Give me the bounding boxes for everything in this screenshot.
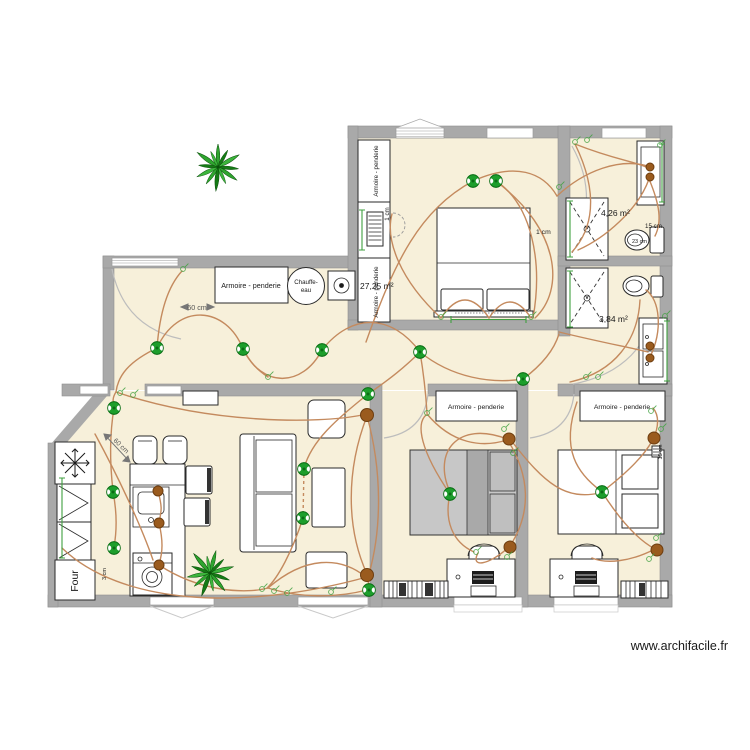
bar-stool-2[interactable] (163, 436, 187, 464)
wardrobe-bedroom1-label: Armoire - penderie (448, 404, 505, 411)
window-hall-bottom-b[interactable] (147, 386, 181, 394)
watermark: www.archifacile.fr (630, 639, 728, 653)
toilet-2[interactable] (623, 276, 663, 297)
outlet-icon[interactable] (646, 342, 654, 350)
wall-bedroom2-left[interactable] (516, 384, 528, 607)
dim-1cm-h: 1 cm (536, 229, 551, 236)
window-bedroom2[interactable] (554, 597, 618, 612)
oven-label: Four (69, 570, 81, 592)
window-bath-top[interactable] (602, 128, 646, 138)
wardrobe-bedroom2-label: Armoire - penderie (594, 404, 651, 411)
water-heater-label-1: Chauffe- (294, 279, 318, 286)
chair-1[interactable] (186, 466, 212, 494)
master-bed[interactable] (434, 208, 533, 317)
dim-3cm: 3 cm (102, 568, 108, 580)
bookshelf-bedroom1[interactable] (384, 581, 448, 598)
window-living-2[interactable] (298, 597, 368, 618)
bookshelf-bedroom2[interactable] (621, 581, 668, 598)
outlet-icon[interactable] (648, 432, 660, 444)
outlet-icon[interactable] (361, 569, 374, 582)
dim-1cm-v: 1 cm (384, 207, 391, 220)
window-hall-bottom-a[interactable] (80, 386, 108, 394)
window-bedroom1[interactable] (454, 597, 522, 612)
spotlight-box[interactable] (328, 271, 355, 300)
outlet-icon[interactable] (154, 518, 164, 528)
desk-bedroom2[interactable] (550, 559, 618, 597)
area-label-bathroom1[interactable]: 4,26 m² (601, 208, 630, 218)
window-living-1[interactable] (150, 597, 214, 618)
outlet-icon[interactable] (504, 541, 516, 553)
water-heater-label-2: eau (301, 287, 312, 294)
window-entry[interactable] (112, 258, 178, 266)
outlet-icon[interactable] (646, 354, 654, 362)
side-table[interactable] (306, 552, 347, 588)
outlet-icon[interactable] (153, 486, 163, 496)
outlet-icon[interactable] (503, 433, 515, 445)
sofa[interactable] (240, 434, 296, 552)
outlet-icon[interactable] (646, 163, 654, 171)
chair-2[interactable] (184, 498, 210, 526)
coffee-table[interactable] (312, 468, 345, 527)
radiator[interactable] (367, 212, 383, 246)
plant-icon[interactable] (196, 144, 240, 191)
bed-bedroom2[interactable] (558, 450, 664, 534)
wardrobe-label: Armoire - penderie (373, 145, 380, 197)
wall-hall-left[interactable] (103, 256, 114, 390)
snowflake-icon (61, 449, 89, 477)
outlet-icon[interactable] (651, 544, 663, 556)
bed-bedroom1[interactable] (410, 450, 517, 535)
outlet-icon[interactable] (361, 409, 374, 422)
area-label-bathroom2[interactable]: 3,84 m² (599, 314, 628, 324)
wall-bath2-corner[interactable] (558, 384, 574, 396)
desk-bedroom1[interactable] (447, 559, 515, 597)
dim-23cm: 23 cm (632, 239, 647, 245)
outlet-icon[interactable] (646, 173, 654, 181)
water-heater[interactable] (288, 268, 325, 305)
outlet-icon[interactable] (154, 560, 164, 570)
window-master-top[interactable] (487, 128, 533, 138)
bar-stool-1[interactable] (133, 436, 157, 464)
dim-15cm: 15 cm (645, 223, 662, 230)
dim-60cm-hall: 60 cm (187, 303, 207, 312)
wardrobe-label: Armoire - penderie (373, 266, 380, 318)
window-louver-top[interactable] (396, 119, 444, 138)
area-label-living[interactable]: 27,25 m² (360, 281, 394, 291)
dim-15cm-v: 15 cm (658, 444, 664, 459)
wardrobe-hall-label: Armoire - penderie (221, 281, 281, 290)
floor-plan-canvas: Armoire - penderie Armoire - penderie 27… (0, 0, 750, 750)
tv-stand[interactable] (183, 391, 218, 405)
